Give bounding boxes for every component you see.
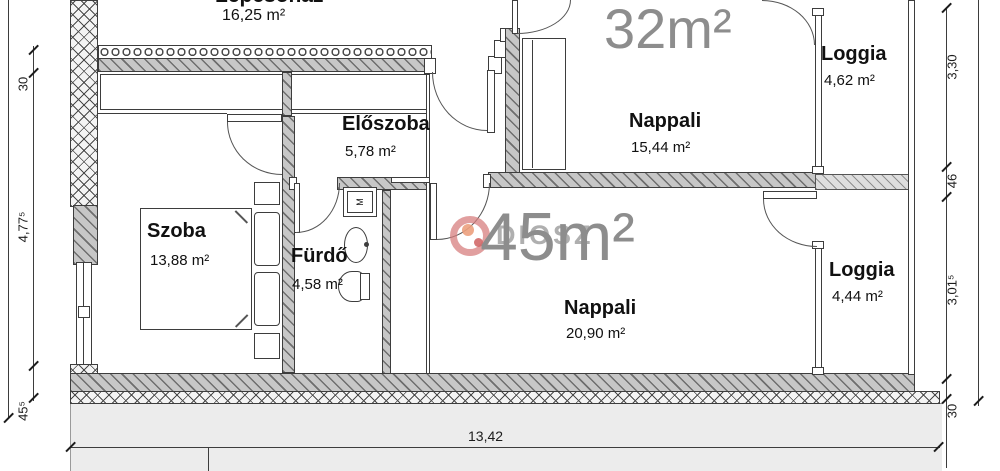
room-area-nappali-lower: 20,90 m² <box>566 325 625 342</box>
dim-label-left-wall-bottom: 45⁵ <box>16 401 31 421</box>
nightstand-1 <box>254 182 280 205</box>
entry-door-leaf <box>487 70 495 133</box>
loggia-slab-divider <box>815 174 915 190</box>
dim-label-left-wall-top: 30 <box>16 77 31 91</box>
room-area-lepcsohaz: 16,25 m² <box>222 7 285 25</box>
washing-machine-label: M <box>355 198 365 206</box>
room-label-eloszoba: Előszoba <box>342 113 430 136</box>
wardrobe-upper-flat-door-line <box>532 40 533 168</box>
dim-line-bottom <box>70 447 940 448</box>
loggia-upper-door-arc <box>762 0 815 45</box>
wall-flat-divider-horizontal <box>488 172 818 188</box>
room-area-nappali-upper: 15,44 m² <box>631 139 690 156</box>
room-label-nappali-lower: Nappali <box>564 297 636 320</box>
szoba-door-arc <box>227 122 282 175</box>
floor-plan: M DIOSZ 32m² 45m² Lépcsőház 16,25 m² Elő… <box>0 0 1000 471</box>
sink-tap <box>364 242 369 247</box>
wall-bottom-structure <box>70 373 915 393</box>
dim-line-right-outer <box>978 0 979 406</box>
entry-door-arc <box>432 72 487 131</box>
wall-exterior-left-upper <box>70 0 98 207</box>
wall-furdo-right <box>382 190 391 374</box>
nappali-lower-door-leaf <box>430 183 437 240</box>
dim-label-bottom-width: 13,42 <box>468 428 503 444</box>
wall-bottom-insulation <box>70 391 940 404</box>
dim-label-right-wall-bottom: 30 <box>945 404 960 418</box>
bed-pillow-2 <box>254 272 280 326</box>
room-area-furdo: 4,58 m² <box>292 276 343 293</box>
furdo-door-arc <box>296 183 340 233</box>
parapet-right <box>908 0 915 375</box>
toilet-tank <box>360 273 370 300</box>
room-label-furdo: Fürdő <box>291 245 348 268</box>
washing-machine-inner: M <box>347 191 373 213</box>
szoba-door-leaf <box>227 114 282 122</box>
glass-post-4 <box>812 367 824 375</box>
glass-post-1 <box>812 8 824 16</box>
room-area-loggia-upper: 4,62 m² <box>824 72 875 89</box>
room-area-loggia-lower: 4,44 m² <box>832 288 883 305</box>
wall-stub-hall <box>282 72 292 116</box>
wall-exterior-left-mid <box>73 205 98 265</box>
ground-strip <box>70 403 942 471</box>
glass-post-2 <box>812 166 824 174</box>
room-label-nappali-upper: Nappali <box>629 110 701 133</box>
site-line-below <box>208 447 209 471</box>
dim-line-left-outer <box>8 0 9 419</box>
wall-flat-divider-vertical <box>505 28 520 175</box>
dim-label-right-lower: 3,01⁵ <box>945 275 960 306</box>
room-label-loggia-lower: Loggia <box>829 259 895 282</box>
room-label-loggia-upper: Loggia <box>821 43 887 66</box>
nightstand-2 <box>254 333 280 359</box>
room-label-szoba: Szoba <box>147 220 206 243</box>
room-area-szoba: 13,88 m² <box>150 252 209 269</box>
loggia-upper-glass-front <box>815 12 822 172</box>
upper-flat-door-leaf <box>512 0 518 34</box>
dim-label-right-top: 3,30 <box>945 54 960 79</box>
wall-thin-above-shaft <box>391 177 430 183</box>
bed-pillow-1 <box>254 212 280 266</box>
loggia-lower-door-leaf <box>763 191 817 199</box>
dim-label-right-slab: 46 <box>945 174 960 188</box>
room-area-eloszoba: 5,78 m² <box>345 143 396 160</box>
szoba-boundary-line-left <box>98 113 227 114</box>
wall-top-structure-band <box>98 58 432 72</box>
apartment-size-upper: 32m² <box>604 1 732 57</box>
window-left-handle <box>78 306 90 318</box>
hall-closet <box>100 74 428 110</box>
dim-label-left-height: 4,77⁵ <box>16 212 31 243</box>
dim-line-left-inner <box>33 46 34 401</box>
loggia-lower-door-arc <box>763 199 817 247</box>
apartment-size-lower: 45m² <box>480 203 635 271</box>
wall-top-insulation-band <box>98 45 432 59</box>
wardrobe-upper-flat <box>522 38 566 170</box>
loggia-lower-glass-front <box>815 245 822 373</box>
upper-flat-door-arc <box>517 0 571 34</box>
watermark-logo-figure-1 <box>462 224 474 236</box>
